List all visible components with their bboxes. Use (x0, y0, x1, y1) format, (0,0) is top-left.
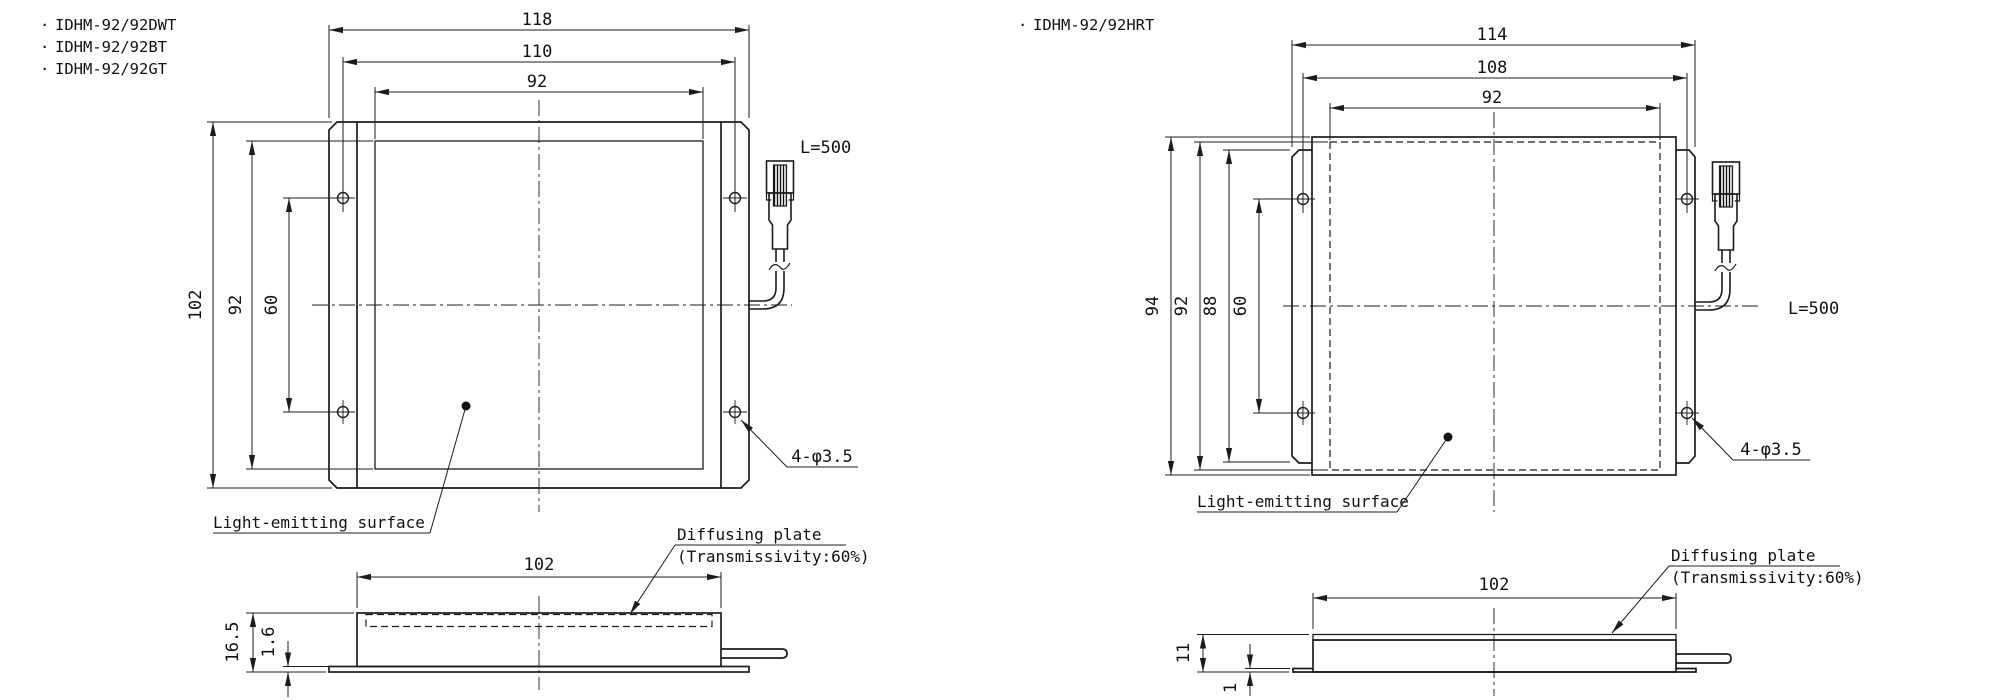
flange-plate (1293, 669, 1696, 673)
dimension-width-outer: 114 (1292, 25, 1695, 147)
model-list: · IDHM-92/92DWT · IDHM-92/92BT · IDHM-92… (40, 16, 176, 78)
dim-text: 110 (522, 42, 553, 62)
left-drawing: · IDHM-92/92DWT · IDHM-92/92BT · IDHM-92… (40, 10, 870, 697)
flange-plate (329, 667, 749, 673)
dim-text: 1.6 (259, 627, 279, 658)
dimension-side-width: 102 (1313, 575, 1676, 629)
cable-stub (1676, 654, 1731, 663)
dim-text: 92 (1172, 296, 1192, 316)
dimension-width-holes: 108 (1303, 58, 1687, 213)
right-drawing: · IDHM-92/92HRT L=500 (1018, 16, 1864, 696)
surface-callout: Light-emitting surface (1197, 433, 1453, 513)
mounting-hole (723, 400, 747, 424)
cable-connector (749, 161, 794, 309)
side-body (1313, 640, 1676, 672)
dim-text: 1 (1221, 683, 1241, 693)
side-view: 102 16.5 1.6 Diffusing plate (Transmissi… (223, 525, 870, 697)
model-list: · IDHM-92/92HRT (1018, 16, 1154, 34)
model-bullet: · (40, 38, 49, 56)
dimension-height-outer: 102 (186, 122, 332, 488)
mounting-brackets (1292, 150, 1695, 463)
model-label: IDHM-92/92GT (55, 60, 167, 78)
front-view: L=500 114 108 92 (1143, 25, 1839, 512)
dim-text: 108 (1477, 58, 1508, 78)
cable-length-label: L=500 (800, 138, 851, 158)
dim-text: 16.5 (223, 622, 243, 663)
model-label: IDHM-92/92HRT (1033, 16, 1154, 34)
dim-text: 11 (1174, 643, 1194, 663)
surface-label: Light-emitting surface (213, 513, 425, 532)
dimension-flange-thickness: 1 (1221, 644, 1290, 696)
surface-label: Light-emitting surface (1197, 492, 1409, 511)
front-view: L=500 118 110 92 (186, 10, 858, 533)
model-bullet: · (1018, 16, 1027, 34)
dim-text: 102 (524, 555, 555, 575)
dim-text: 92 (527, 72, 547, 92)
plate-label: Diffusing plate (1671, 546, 1816, 565)
hole-callout-text: 4-φ3.5 (1740, 440, 1801, 460)
dim-text: 102 (1479, 575, 1510, 595)
dim-text: 118 (522, 10, 553, 30)
model-bullet: · (40, 60, 49, 78)
dim-text: 88 (1201, 296, 1221, 316)
cable-length-label: L=500 (1788, 299, 1839, 319)
model-bullet: · (40, 16, 49, 34)
cable-connector (1695, 162, 1740, 310)
centerlines (312, 100, 792, 512)
model-label: IDHM-92/92DWT (55, 16, 176, 34)
hole-callout-text: 4-φ3.5 (791, 447, 852, 467)
plate-label: Diffusing plate (677, 525, 822, 544)
dim-text: 94 (1143, 296, 1163, 316)
dimension-side-height: 11 (1174, 635, 1309, 673)
hole-callout: 4-φ3.5 (1692, 418, 1810, 460)
drawing-canvas: · IDHM-92/92DWT · IDHM-92/92BT · IDHM-92… (0, 0, 2000, 700)
dim-text: 60 (1231, 296, 1251, 316)
plate-note: (Transmissivity:60%) (1671, 568, 1864, 587)
dimension-height-holes: 60 (262, 198, 352, 412)
dim-text: 114 (1477, 25, 1508, 45)
hole-callout: 4-φ3.5 (741, 420, 858, 467)
plate-note: (Transmissivity:60%) (677, 547, 870, 566)
dim-text: 92 (1482, 88, 1502, 108)
plate-callout: Diffusing plate (Transmissivity:60%) (1612, 546, 1864, 633)
technical-drawing-sheet: · IDHM-92/92DWT · IDHM-92/92BT · IDHM-92… (0, 0, 2000, 700)
cable-stub (721, 649, 787, 658)
dimension-height-holes: 60 (1231, 199, 1312, 413)
dim-text: 102 (186, 290, 206, 321)
model-label: IDHM-92/92BT (55, 38, 167, 56)
dimension-flange-thickness: 1.6 (259, 627, 353, 697)
side-view: 102 11 1 Diffusing plate (Transmissivity… (1174, 546, 1864, 696)
centerlines (1283, 112, 1762, 512)
plate-callout: Diffusing plate (Transmissivity:60%) (630, 525, 870, 614)
dim-text: 92 (226, 295, 246, 315)
dimension-width-window: 92 (1330, 88, 1660, 140)
dim-text: 60 (262, 295, 282, 315)
